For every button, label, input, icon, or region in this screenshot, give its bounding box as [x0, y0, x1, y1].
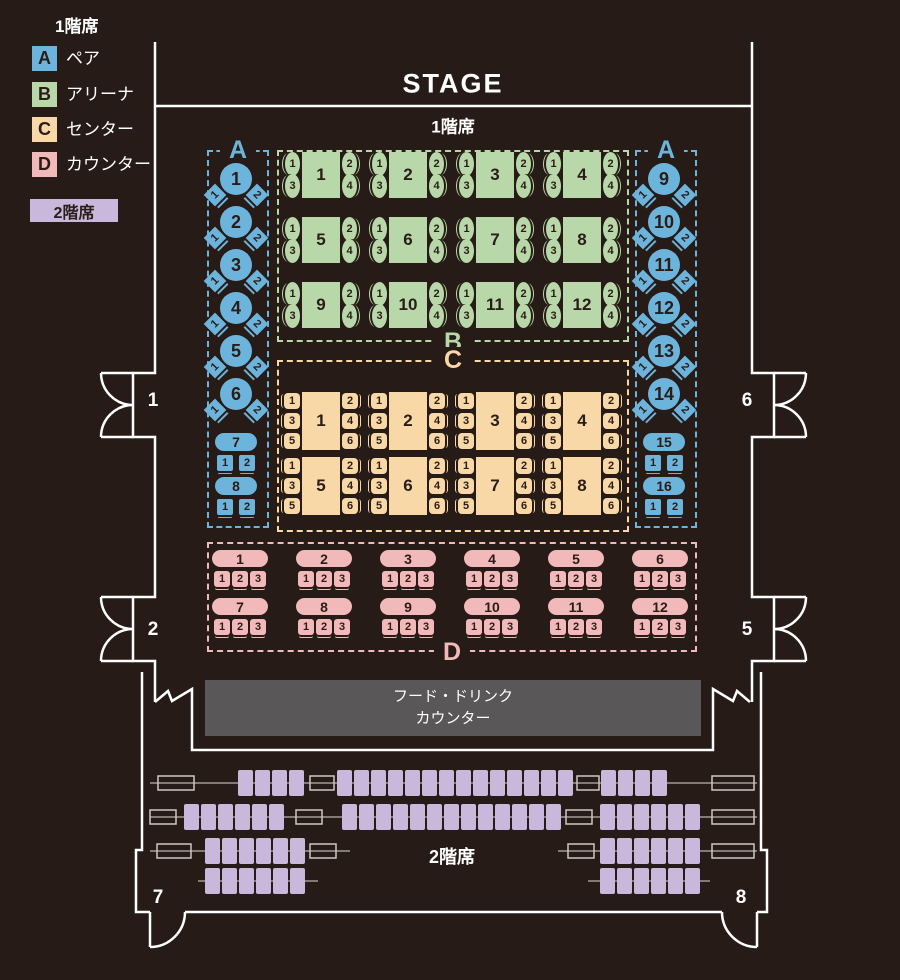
seat-c2-2[interactable]: 2	[429, 393, 445, 409]
floor2-seat[interactable]	[685, 838, 700, 864]
seat-a7-1[interactable]: 1	[217, 455, 233, 471]
floor2-seat[interactable]	[388, 770, 403, 796]
seat-c6-1[interactable]: 1	[371, 458, 387, 474]
seat-c3-6[interactable]: 6	[516, 433, 532, 449]
floor2-seat[interactable]	[201, 804, 216, 830]
floor2-seat[interactable]	[205, 868, 220, 894]
floor2-seat[interactable]	[371, 770, 386, 796]
floor2-seat[interactable]	[512, 804, 527, 830]
section-d: D	[207, 542, 697, 652]
floor2-seat[interactable]	[273, 868, 288, 894]
table-b-6[interactable]: 6	[389, 217, 427, 263]
floor2-seat[interactable]	[668, 868, 683, 894]
floor2-seat[interactable]	[354, 770, 369, 796]
seat-b7-3[interactable]: 3	[459, 239, 474, 263]
seat-c6-6[interactable]: 6	[429, 498, 445, 514]
food-drink-counter: フード・ドリンク カウンター	[205, 680, 701, 736]
table-a-7[interactable]: 7	[215, 433, 257, 451]
floor2-seat[interactable]	[668, 804, 683, 830]
floor2-seat[interactable]	[600, 804, 615, 830]
table-a-13[interactable]: 13	[648, 335, 680, 367]
floor2-seat[interactable]	[359, 804, 374, 830]
seat-d11-1[interactable]: 1	[550, 619, 566, 635]
floor2-seat[interactable]	[634, 868, 649, 894]
seat-c4-3[interactable]: 3	[545, 413, 561, 429]
seat-c2-1[interactable]: 1	[371, 393, 387, 409]
seat-c6-5[interactable]: 5	[371, 498, 387, 514]
seat-d6-3[interactable]: 3	[670, 571, 686, 587]
seat-c4-2[interactable]: 2	[603, 393, 619, 409]
seat-b11-1[interactable]: 1	[459, 282, 474, 306]
seat-b9-2[interactable]: 2	[342, 282, 357, 306]
seat-d1-3[interactable]: 3	[250, 571, 266, 587]
door-2-icon	[101, 597, 133, 661]
seat-b12-2[interactable]: 2	[603, 282, 618, 306]
table-c-8[interactable]: 8	[563, 457, 601, 515]
seat-c2-4[interactable]: 4	[429, 413, 445, 429]
floor2-seat[interactable]	[342, 804, 357, 830]
seat-a8-1[interactable]: 1	[217, 499, 233, 515]
table-c-7[interactable]: 7	[476, 457, 514, 515]
seat-b2-1[interactable]: 1	[372, 152, 387, 176]
table-d-7[interactable]: 7	[212, 598, 268, 615]
seat-d11-3[interactable]: 3	[586, 619, 602, 635]
seat-b6-1[interactable]: 1	[372, 217, 387, 241]
floor2-seat[interactable]	[529, 804, 544, 830]
seat-c5-5[interactable]: 5	[284, 498, 300, 514]
seat-c1-1[interactable]: 1	[284, 393, 300, 409]
floor2-seat[interactable]	[601, 770, 616, 796]
floor2-seat[interactable]	[239, 838, 254, 864]
table-b-5[interactable]: 5	[302, 217, 340, 263]
floor2-seat[interactable]	[222, 838, 237, 864]
seat-d10-1[interactable]: 1	[466, 619, 482, 635]
floor2-seat[interactable]	[290, 838, 305, 864]
floor2-right-wall	[757, 672, 767, 912]
seat-d8-3[interactable]: 3	[334, 619, 350, 635]
seat-d3-2[interactable]: 2	[400, 571, 416, 587]
floor2-seat[interactable]	[495, 804, 510, 830]
seat-b12-4[interactable]: 4	[603, 304, 618, 328]
seat-b6-3[interactable]: 3	[372, 239, 387, 263]
seat-b4-3[interactable]: 3	[546, 174, 561, 198]
seat-c6-2[interactable]: 2	[429, 458, 445, 474]
table-c-2[interactable]: 2	[389, 392, 427, 450]
seat-d9-2[interactable]: 2	[400, 619, 416, 635]
seat-b8-2[interactable]: 2	[603, 217, 618, 241]
floor2-seat[interactable]	[478, 804, 493, 830]
section-a_right-label: A	[648, 137, 684, 163]
seat-d7-3[interactable]: 3	[250, 619, 266, 635]
floor2-seat[interactable]	[546, 804, 561, 830]
floor2-seat[interactable]	[524, 770, 539, 796]
floor2-seat[interactable]	[651, 804, 666, 830]
table-a-1[interactable]: 1	[220, 163, 252, 195]
floor2-seat[interactable]	[289, 770, 304, 796]
table-a-9[interactable]: 9	[648, 163, 680, 195]
floor2-seat[interactable]	[184, 804, 199, 830]
seat-c8-1[interactable]: 1	[545, 458, 561, 474]
seat-d5-3[interactable]: 3	[586, 571, 602, 587]
floor2-seat[interactable]	[473, 770, 488, 796]
door-8-label: 8	[736, 887, 747, 909]
floor2-seat[interactable]	[685, 868, 700, 894]
floor2-seat[interactable]	[634, 804, 649, 830]
table-c-1[interactable]: 1	[302, 392, 340, 450]
seat-b9-4[interactable]: 4	[342, 304, 357, 328]
table-a-5[interactable]: 5	[220, 335, 252, 367]
floor2-seat[interactable]	[337, 770, 352, 796]
seat-c7-5[interactable]: 5	[458, 498, 474, 514]
table-a-11[interactable]: 11	[648, 249, 680, 281]
seat-c2-3[interactable]: 3	[371, 413, 387, 429]
seat-c3-1[interactable]: 1	[458, 393, 474, 409]
floor2-seat[interactable]	[635, 770, 650, 796]
seat-d9-3[interactable]: 3	[418, 619, 434, 635]
floor2-seat[interactable]	[444, 804, 459, 830]
seat-b2-2[interactable]: 2	[429, 152, 444, 176]
floor2-seat[interactable]	[634, 838, 649, 864]
seat-d12-1[interactable]: 1	[634, 619, 650, 635]
table-d-10[interactable]: 10	[464, 598, 520, 615]
seat-b2-3[interactable]: 3	[372, 174, 387, 198]
stage-label: STAGE	[402, 69, 503, 100]
seat-b3-1[interactable]: 1	[459, 152, 474, 176]
seat-c8-5[interactable]: 5	[545, 498, 561, 514]
floor2-seat[interactable]	[273, 838, 288, 864]
seat-d2-3[interactable]: 3	[334, 571, 350, 587]
table-b-11[interactable]: 11	[476, 282, 514, 328]
seat-b1-1[interactable]: 1	[285, 152, 300, 176]
seat-c2-5[interactable]: 5	[371, 433, 387, 449]
table-a-12[interactable]: 12	[648, 292, 680, 324]
floor2-seat[interactable]	[205, 838, 220, 864]
seat-d6-1[interactable]: 1	[634, 571, 650, 587]
floor2-seat[interactable]	[252, 804, 267, 830]
floor2-seat[interactable]	[405, 770, 420, 796]
seat-a7-2[interactable]: 2	[239, 455, 255, 471]
seat-c5-2[interactable]: 2	[342, 458, 358, 474]
floor2-seat[interactable]	[218, 804, 233, 830]
door-7-label: 7	[153, 887, 164, 909]
floor1-label: 1階席	[431, 113, 474, 138]
seat-d4-2[interactable]: 2	[484, 571, 500, 587]
seat-b7-2[interactable]: 2	[516, 217, 531, 241]
table-b-1[interactable]: 1	[302, 152, 340, 198]
floor2-label: 2階席	[429, 843, 475, 869]
seat-d1-2[interactable]: 2	[232, 571, 248, 587]
seat-b5-4[interactable]: 4	[342, 239, 357, 263]
seat-b5-2[interactable]: 2	[342, 217, 357, 241]
seat-c7-6[interactable]: 6	[516, 498, 532, 514]
seat-d2-2[interactable]: 2	[316, 571, 332, 587]
floor2-seat[interactable]	[239, 868, 254, 894]
floor2-seat[interactable]	[541, 770, 556, 796]
seat-b12-3[interactable]: 3	[546, 304, 561, 328]
door-7-icon	[150, 912, 185, 947]
table-a-16[interactable]: 16	[643, 477, 685, 495]
seat-d7-2[interactable]: 2	[232, 619, 248, 635]
section-d-label: D	[434, 639, 470, 665]
table-c-6[interactable]: 6	[389, 457, 427, 515]
seat-c1-2[interactable]: 2	[342, 393, 358, 409]
seat-c5-6[interactable]: 6	[342, 498, 358, 514]
floor2-seat[interactable]	[558, 770, 573, 796]
table-a-10[interactable]: 10	[648, 206, 680, 238]
floor2-seat[interactable]	[651, 838, 666, 864]
table-d-2[interactable]: 2	[296, 550, 352, 567]
seat-b8-4[interactable]: 4	[603, 239, 618, 263]
seat-d8-1[interactable]: 1	[298, 619, 314, 635]
section-c-label: C	[435, 347, 471, 373]
section-a_left-label: A	[220, 137, 256, 163]
seat-d10-3[interactable]: 3	[502, 619, 518, 635]
food-drink-counter-line2: カウンター	[415, 708, 490, 730]
seat-b8-3[interactable]: 3	[546, 239, 561, 263]
seat-c4-1[interactable]: 1	[545, 393, 561, 409]
seat-b7-4[interactable]: 4	[516, 239, 531, 263]
seat-c7-1[interactable]: 1	[458, 458, 474, 474]
seat-d7-1[interactable]: 1	[214, 619, 230, 635]
seat-b10-3[interactable]: 3	[372, 304, 387, 328]
seat-d6-2[interactable]: 2	[652, 571, 668, 587]
seat-a8-2[interactable]: 2	[239, 499, 255, 515]
floor2-seat[interactable]	[652, 770, 667, 796]
table-c-3[interactable]: 3	[476, 392, 514, 450]
seat-c2-6[interactable]: 6	[429, 433, 445, 449]
seat-c1-4[interactable]: 4	[342, 413, 358, 429]
table-b-7[interactable]: 7	[476, 217, 514, 263]
seat-d9-1[interactable]: 1	[382, 619, 398, 635]
table-a-15[interactable]: 15	[643, 433, 685, 451]
floor2-seat[interactable]	[685, 804, 700, 830]
seat-c8-6[interactable]: 6	[603, 498, 619, 514]
seat-c7-3[interactable]: 3	[458, 478, 474, 494]
table-a-3[interactable]: 3	[220, 249, 252, 281]
food-drink-counter-line1: フード・ドリンク	[393, 686, 513, 708]
seat-b10-2[interactable]: 2	[429, 282, 444, 306]
table-d-9[interactable]: 9	[380, 598, 436, 615]
table-a-8[interactable]: 8	[215, 477, 257, 495]
floor2-seat[interactable]	[410, 804, 425, 830]
seat-d5-2[interactable]: 2	[568, 571, 584, 587]
seat-b4-2[interactable]: 2	[603, 152, 618, 176]
floor2-seat[interactable]	[461, 804, 476, 830]
seat-c4-5[interactable]: 5	[545, 433, 561, 449]
seat-b6-4[interactable]: 4	[429, 239, 444, 263]
table-a-14[interactable]: 14	[648, 378, 680, 410]
seat-b5-3[interactable]: 3	[285, 239, 300, 263]
seat-b10-4[interactable]: 4	[429, 304, 444, 328]
seat-b4-1[interactable]: 1	[546, 152, 561, 176]
door-1-label: 1	[148, 390, 159, 412]
seat-c3-5[interactable]: 5	[458, 433, 474, 449]
seat-b2-4[interactable]: 4	[429, 174, 444, 198]
door-8-icon	[722, 912, 757, 947]
seat-b3-2[interactable]: 2	[516, 152, 531, 176]
seat-b1-2[interactable]: 2	[342, 152, 357, 176]
table-d-5[interactable]: 5	[548, 550, 604, 567]
door-1-icon	[101, 373, 133, 437]
floor2-seat[interactable]	[427, 804, 442, 830]
floor2-seat[interactable]	[507, 770, 522, 796]
table-b-10[interactable]: 10	[389, 282, 427, 328]
seat-c1-3[interactable]: 3	[284, 413, 300, 429]
seat-b9-3[interactable]: 3	[285, 304, 300, 328]
floor2-seat[interactable]	[617, 838, 632, 864]
floor2-seat[interactable]	[490, 770, 505, 796]
table-d-4[interactable]: 4	[464, 550, 520, 567]
floor2-seat[interactable]	[422, 770, 437, 796]
seat-d5-1[interactable]: 1	[550, 571, 566, 587]
seat-c3-4[interactable]: 4	[516, 413, 532, 429]
floor2-seat[interactable]	[290, 868, 305, 894]
seat-c5-1[interactable]: 1	[284, 458, 300, 474]
floor2-seat[interactable]	[376, 804, 391, 830]
seat-c6-3[interactable]: 3	[371, 478, 387, 494]
floor2-left-wall	[136, 672, 150, 912]
seat-c8-3[interactable]: 3	[545, 478, 561, 494]
table-b-3[interactable]: 3	[476, 152, 514, 198]
table-c-4[interactable]: 4	[563, 392, 601, 450]
table-a-2[interactable]: 2	[220, 206, 252, 238]
floor2-seat[interactable]	[668, 838, 683, 864]
floor2-seat[interactable]	[255, 770, 270, 796]
seat-d3-3[interactable]: 3	[418, 571, 434, 587]
seat-d2-1[interactable]: 1	[298, 571, 314, 587]
seat-c1-5[interactable]: 5	[284, 433, 300, 449]
floor2-seat[interactable]	[617, 804, 632, 830]
seat-c5-3[interactable]: 3	[284, 478, 300, 494]
table-b-4[interactable]: 4	[563, 152, 601, 198]
table-b-12[interactable]: 12	[563, 282, 601, 328]
table-b-9[interactable]: 9	[302, 282, 340, 328]
floor2-seat[interactable]	[269, 804, 284, 830]
seat-d12-3[interactable]: 3	[670, 619, 686, 635]
seat-b11-3[interactable]: 3	[459, 304, 474, 328]
floor2-seat[interactable]	[235, 804, 250, 830]
seat-d1-1[interactable]: 1	[214, 571, 230, 587]
table-b-2[interactable]: 2	[389, 152, 427, 198]
floor2-seat[interactable]	[256, 868, 271, 894]
table-d-1[interactable]: 1	[212, 550, 268, 567]
floor2-seat[interactable]	[651, 868, 666, 894]
seat-b3-4[interactable]: 4	[516, 174, 531, 198]
table-b-8[interactable]: 8	[563, 217, 601, 263]
table-c-5[interactable]: 5	[302, 457, 340, 515]
seat-d4-1[interactable]: 1	[466, 571, 482, 587]
hall-right-wall	[752, 106, 774, 702]
door-6-icon	[774, 373, 806, 437]
seat-d12-2[interactable]: 2	[652, 619, 668, 635]
table-d-3[interactable]: 3	[380, 550, 436, 567]
table-a-6[interactable]: 6	[220, 378, 252, 410]
floor2-seat[interactable]	[618, 770, 633, 796]
seat-c7-4[interactable]: 4	[516, 478, 532, 494]
seat-b3-3[interactable]: 3	[459, 174, 474, 198]
floor2-seat[interactable]	[456, 770, 471, 796]
seat-b11-4[interactable]: 4	[516, 304, 531, 328]
seat-d4-3[interactable]: 3	[502, 571, 518, 587]
seat-a16-2[interactable]: 2	[667, 499, 683, 515]
floor2-seat[interactable]	[600, 838, 615, 864]
door-5-icon	[774, 597, 806, 661]
seat-d10-2[interactable]: 2	[484, 619, 500, 635]
table-d-12[interactable]: 12	[632, 598, 688, 615]
floor2-seat[interactable]	[439, 770, 454, 796]
seat-c4-4[interactable]: 4	[603, 413, 619, 429]
seat-a15-2[interactable]: 2	[667, 455, 683, 471]
venue-seating-map: 1階席 A ペア B アリーナ C センター D カウンター 2階席 STAGE…	[0, 0, 900, 980]
floor2-seat[interactable]	[600, 868, 615, 894]
floor2-seat[interactable]	[222, 868, 237, 894]
floor2-seat[interactable]	[256, 838, 271, 864]
seat-b6-2[interactable]: 2	[429, 217, 444, 241]
table-d-11[interactable]: 11	[548, 598, 604, 615]
seat-b1-3[interactable]: 3	[285, 174, 300, 198]
seat-c3-3[interactable]: 3	[458, 413, 474, 429]
seat-a16-1[interactable]: 1	[645, 499, 661, 515]
seat-b7-1[interactable]: 1	[459, 217, 474, 241]
table-d-6[interactable]: 6	[632, 550, 688, 567]
seat-d3-1[interactable]: 1	[382, 571, 398, 587]
seat-a15-1[interactable]: 1	[645, 455, 661, 471]
seat-b1-4[interactable]: 4	[342, 174, 357, 198]
door-6-label: 6	[742, 390, 753, 412]
seat-b11-2[interactable]: 2	[516, 282, 531, 306]
seat-c6-4[interactable]: 4	[429, 478, 445, 494]
floor2-seat[interactable]	[617, 868, 632, 894]
door-5-label: 5	[742, 619, 753, 641]
seat-c4-6[interactable]: 6	[603, 433, 619, 449]
seat-b10-1[interactable]: 1	[372, 282, 387, 306]
table-a-4[interactable]: 4	[220, 292, 252, 324]
floor2-seat[interactable]	[393, 804, 408, 830]
table-d-8[interactable]: 8	[296, 598, 352, 615]
floor2-seat[interactable]	[238, 770, 253, 796]
floor2-seat[interactable]	[272, 770, 287, 796]
seat-b12-1[interactable]: 1	[546, 282, 561, 306]
seat-b8-1[interactable]: 1	[546, 217, 561, 241]
seat-b5-1[interactable]: 1	[285, 217, 300, 241]
door-2-label: 2	[148, 619, 159, 641]
seat-c1-6[interactable]: 6	[342, 433, 358, 449]
seat-d8-2[interactable]: 2	[316, 619, 332, 635]
seat-c8-2[interactable]: 2	[603, 458, 619, 474]
seat-c3-2[interactable]: 2	[516, 393, 532, 409]
seat-c5-4[interactable]: 4	[342, 478, 358, 494]
seat-c7-2[interactable]: 2	[516, 458, 532, 474]
seat-b4-4[interactable]: 4	[603, 174, 618, 198]
seat-d11-2[interactable]: 2	[568, 619, 584, 635]
seat-c8-4[interactable]: 4	[603, 478, 619, 494]
seat-b9-1[interactable]: 1	[285, 282, 300, 306]
